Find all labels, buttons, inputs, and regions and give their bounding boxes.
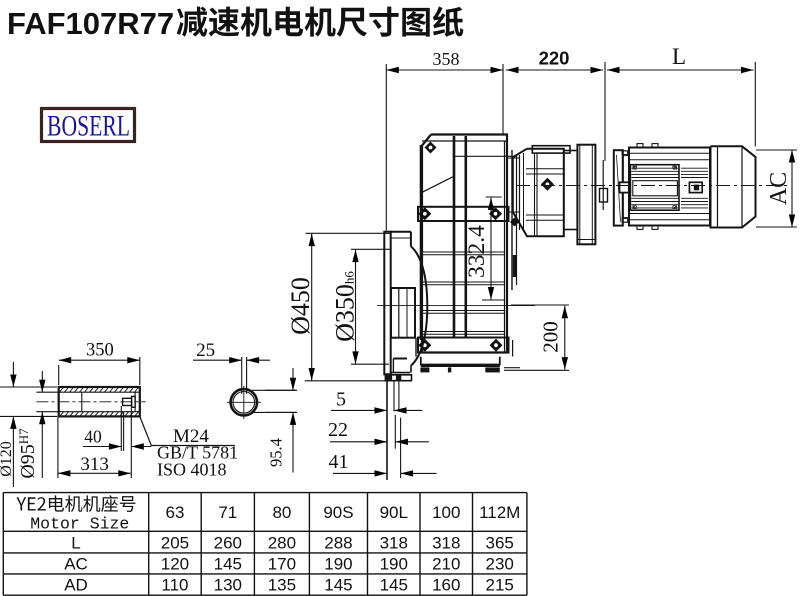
svg-text:160: 160: [432, 576, 460, 595]
svg-text:Ø450: Ø450: [286, 277, 315, 335]
svg-text:AD: AD: [64, 576, 88, 595]
svg-text:22: 22: [328, 419, 348, 441]
svg-text:ISO 4018: ISO 4018: [157, 459, 227, 479]
svg-text:350: 350: [86, 341, 114, 361]
svg-text:63: 63: [165, 503, 184, 522]
svg-text:190: 190: [380, 555, 408, 574]
svg-text:332.4: 332.4: [464, 225, 490, 278]
svg-text:210: 210: [432, 555, 460, 574]
svg-text:318: 318: [380, 534, 408, 553]
svg-text:AC: AC: [64, 555, 88, 574]
svg-text:313: 313: [80, 454, 109, 475]
svg-text:L: L: [71, 534, 80, 553]
svg-text:71: 71: [218, 503, 237, 522]
svg-text:260: 260: [214, 534, 242, 553]
svg-text:L: L: [672, 44, 686, 69]
svg-text:145: 145: [380, 576, 408, 595]
svg-text:Motor Size: Motor Size: [30, 515, 129, 534]
svg-text:190: 190: [324, 555, 352, 574]
svg-text:205: 205: [161, 534, 189, 553]
svg-text:220: 220: [539, 48, 570, 69]
svg-text:FAF107R77: FAF107R77: [7, 6, 174, 41]
svg-text:288: 288: [324, 534, 352, 553]
svg-text:5: 5: [336, 389, 346, 411]
svg-text:BOSERL: BOSERL: [47, 110, 130, 143]
svg-text:AC: AC: [766, 172, 792, 205]
svg-text:215: 215: [486, 576, 514, 595]
svg-text:230: 230: [486, 555, 514, 574]
svg-text:358: 358: [433, 49, 460, 69]
svg-text:80: 80: [272, 503, 291, 522]
svg-text:40: 40: [84, 426, 102, 446]
svg-text:318: 318: [432, 534, 460, 553]
svg-text:112M: 112M: [479, 503, 520, 522]
svg-text:145: 145: [324, 576, 352, 595]
svg-text:280: 280: [268, 534, 296, 553]
svg-text:41: 41: [329, 451, 349, 473]
svg-text:100: 100: [432, 503, 460, 522]
svg-text:Ø120: Ø120: [0, 441, 15, 477]
svg-text:170: 170: [268, 555, 296, 574]
svg-text:200: 200: [539, 321, 563, 353]
svg-text:145: 145: [214, 555, 242, 574]
svg-text:25: 25: [196, 340, 215, 361]
svg-text:90L: 90L: [380, 503, 408, 522]
svg-text:365: 365: [486, 534, 514, 553]
svg-text:95.4: 95.4: [267, 438, 286, 467]
svg-text:120: 120: [161, 555, 189, 574]
svg-text:90S: 90S: [323, 503, 353, 522]
svg-text:130: 130: [214, 576, 242, 595]
svg-text:110: 110: [161, 576, 188, 595]
svg-text:135: 135: [268, 576, 296, 595]
